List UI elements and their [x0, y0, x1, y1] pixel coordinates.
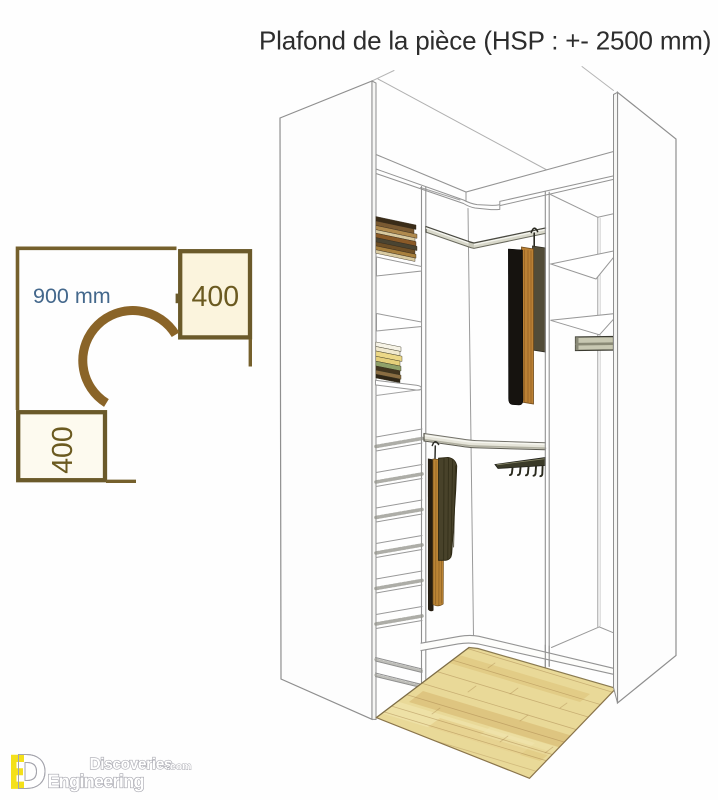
svg-text:Discoveries: Discoveries [90, 756, 173, 773]
svg-text:.com: .com [167, 761, 192, 773]
svg-text:400: 400 [192, 281, 240, 313]
svg-text:Engineering: Engineering [48, 772, 144, 792]
svg-text:Plafond de la pièce (HSP : +-: Plafond de la pièce (HSP : +- 2500 mm) [259, 26, 711, 56]
svg-text:900 mm: 900 mm [33, 284, 111, 308]
svg-text:400: 400 [47, 426, 79, 474]
